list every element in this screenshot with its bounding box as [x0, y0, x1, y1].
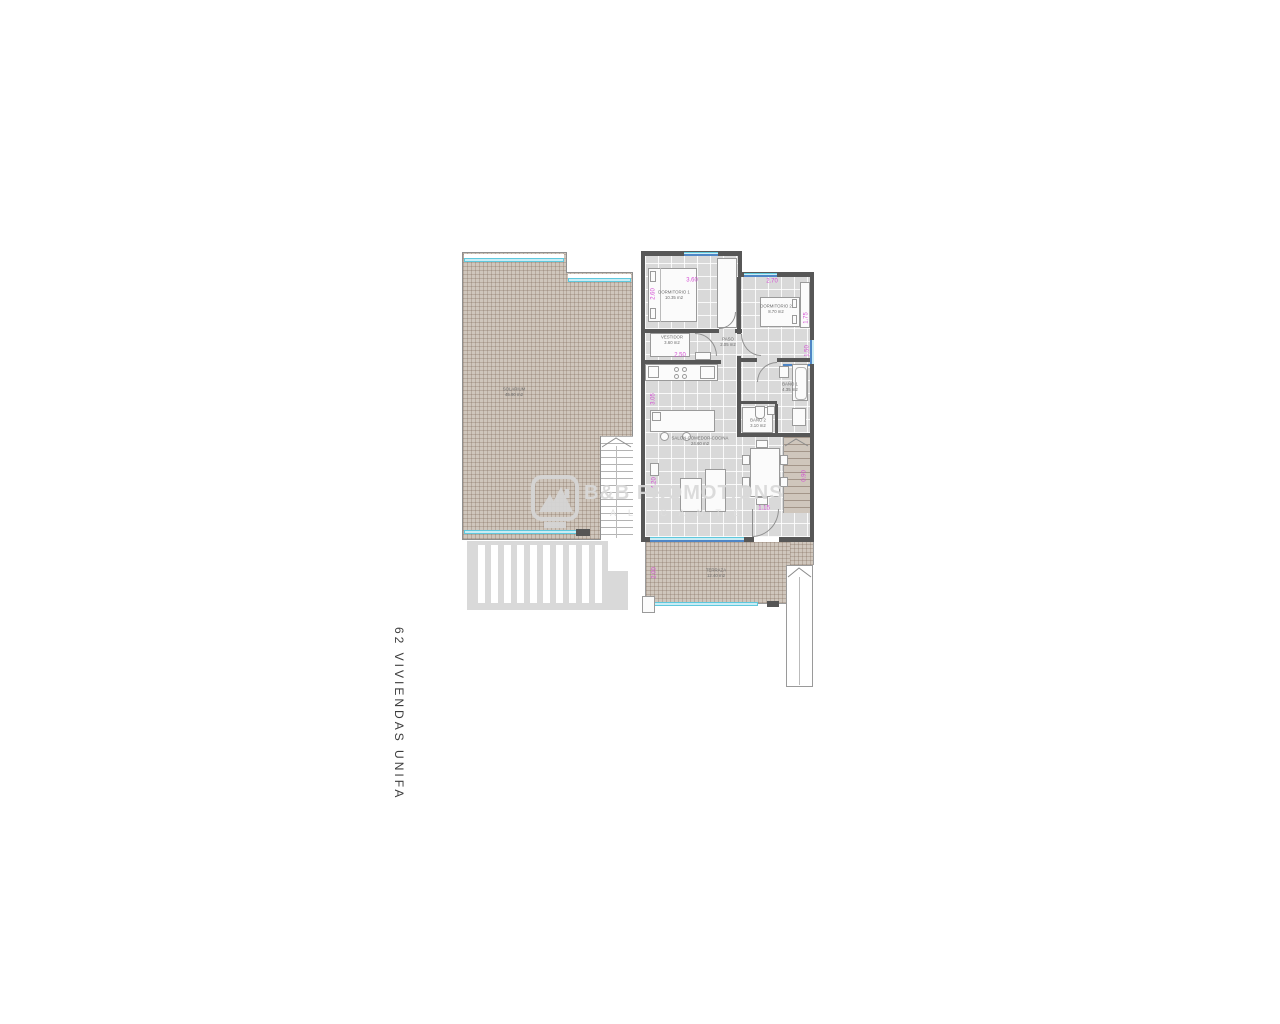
- dim-bedroom2-side: 1.75: [803, 312, 809, 324]
- stool-1: [660, 432, 669, 441]
- chair-top: [756, 440, 768, 448]
- bath2-name: BAÑO 2: [750, 419, 766, 423]
- bedroom2-name: DORMITORIO 2: [760, 305, 792, 309]
- terrace-gate: [642, 596, 655, 613]
- bed2-pillow-b: [792, 315, 797, 324]
- bedroom2-area: 8.70 m2: [760, 310, 792, 315]
- kitchen-sink: [648, 366, 659, 378]
- bath1-label: BAÑO 1 4.35 m2: [782, 383, 798, 394]
- bedroom1-label: DORMITORIO 1 10.35 m2: [658, 291, 690, 302]
- living-name: SALON-COMEDOR-COCINA: [672, 437, 729, 441]
- island-sink: [652, 412, 661, 421]
- interior-stairs-arrow-icon: [783, 437, 810, 447]
- hob-burner-3: [674, 374, 679, 379]
- wall-aseo-top: [737, 401, 777, 404]
- bath-wc: [779, 366, 789, 378]
- wall-bedroom2-bottom-a: [741, 358, 757, 362]
- chair-left-1: [742, 455, 750, 465]
- bedroom2-label: DORMITORIO 2 8.70 m2: [760, 305, 792, 316]
- bath-sink: [792, 408, 806, 426]
- wall-bedroom2-bottom-b: [777, 358, 814, 362]
- aseo-sink: [767, 406, 775, 415]
- terrace-area: 12.40 m2: [706, 574, 726, 579]
- terrace-label: TERRAZA 12.40 m2: [706, 569, 726, 580]
- closet-label: VESTIDOR 3.60 m2: [661, 336, 683, 347]
- bath1-area: 4.35 m2: [782, 388, 798, 393]
- bedroom1-window: [684, 252, 718, 256]
- living-area: 24.60 m2: [672, 442, 729, 447]
- dim-bedroom2-width: 2.70: [766, 278, 778, 284]
- dim-bedroom1-side: 2.60: [650, 288, 656, 300]
- hall-area: 2.05 m2: [720, 343, 736, 348]
- bed1-pillow-a: [650, 271, 656, 282]
- watermark-subtitle: A L I C A N T E: [610, 508, 744, 518]
- hall-name: PASO: [722, 338, 734, 342]
- bath-window: [810, 340, 814, 364]
- watermark-brand: B&B PROMOTIONS: [584, 482, 784, 505]
- kitchen-appliance: [700, 366, 715, 379]
- aseo-toilet: [755, 406, 765, 419]
- dim-kitchen-side: 3.05: [650, 393, 656, 405]
- terrace-name: TERRAZA: [706, 569, 726, 573]
- company-logo-icon: [530, 474, 580, 530]
- bath1-name: BAÑO 1: [782, 383, 798, 387]
- hob-burner-4: [682, 374, 687, 379]
- wall-hall-bedroom2-a: [737, 277, 741, 334]
- hall-label: PASO 2.05 m2: [720, 338, 736, 349]
- living-label: SALON-COMEDOR-COCINA 24.60 m2: [672, 437, 729, 448]
- exterior-stairs-arrow-icon: [786, 566, 813, 578]
- bedroom1-name: DORMITORIO 1: [658, 291, 690, 295]
- exterior-stairs-rail: [799, 577, 800, 685]
- dim-closet-width: 2.50: [674, 352, 686, 358]
- closet-name: VESTIDOR: [661, 336, 683, 340]
- terrace-balustrade: [648, 602, 758, 606]
- bath2-area: 3.10 m2: [750, 424, 766, 429]
- bath2-label: BAÑO 2 3.10 m2: [750, 419, 766, 430]
- terrace-step-marker: [767, 601, 779, 607]
- terrace-slab-right: [790, 542, 814, 565]
- bedroom1-area: 10.35 m2: [658, 296, 690, 301]
- chair-right-1: [780, 455, 788, 465]
- dim-bedroom1-width: 3.60: [686, 277, 698, 283]
- plan-title-vertical: 62 VIVIENDAS UNIFA: [392, 627, 406, 800]
- hob-burner-2: [682, 367, 687, 372]
- dim-bath-window: 1.50: [804, 345, 810, 357]
- bed1-pillow-b: [650, 308, 656, 319]
- dim-terrace-side: 2.00: [651, 567, 657, 579]
- hob-burner-1: [674, 367, 679, 372]
- watermark: B&B PROMOTIONS A L I C A N T E: [530, 474, 830, 536]
- bed2-pillow-a: [792, 299, 797, 308]
- closet-area: 3.60 m2: [661, 341, 683, 346]
- bedroom2-window: [744, 273, 777, 277]
